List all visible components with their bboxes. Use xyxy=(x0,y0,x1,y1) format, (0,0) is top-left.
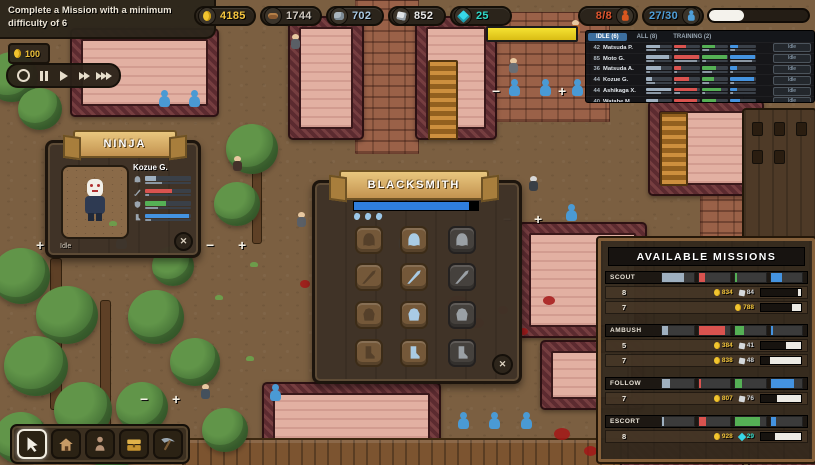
stat-speed xyxy=(730,99,756,103)
gold-value: 4185 xyxy=(220,10,246,22)
stat-attack xyxy=(674,99,700,103)
req-defense-bar xyxy=(734,416,767,427)
blood-splat xyxy=(554,428,570,440)
req-speed-bar xyxy=(770,416,803,427)
villager-character xyxy=(296,212,306,227)
req-defense-bar xyxy=(734,378,767,389)
assigned-worker-icon xyxy=(539,79,551,96)
stat-stealth xyxy=(646,88,672,95)
stat-speed xyxy=(730,77,756,84)
assigned-worker-icon xyxy=(520,412,532,429)
tab-training[interactable]: TRAINING (2) xyxy=(665,33,719,41)
window xyxy=(752,150,763,164)
tree xyxy=(202,408,248,452)
blacksmith-slot-tunic-leather[interactable] xyxy=(355,301,383,329)
roster-status-button[interactable]: Idle xyxy=(773,87,811,96)
stat-defense xyxy=(702,66,728,73)
silver-reward: 84 xyxy=(739,289,754,296)
req-stealth-bar xyxy=(661,325,694,336)
stat-defense xyxy=(702,88,728,95)
mission-section-name: SCOUT xyxy=(610,274,661,281)
sword-icon xyxy=(453,268,471,286)
blacksmith-slot-boots-locked xyxy=(448,339,476,367)
roster-level: 42 xyxy=(589,45,600,51)
house-icon xyxy=(57,435,75,453)
success-chance-bar xyxy=(760,432,802,441)
stat-attack xyxy=(674,77,700,84)
stat-defense xyxy=(702,55,728,62)
roster-level: 40 xyxy=(589,99,600,103)
roster-name: Watabe M. xyxy=(603,99,646,103)
silver-value: 852 xyxy=(414,10,433,22)
ninja-population: 8/8 xyxy=(578,6,638,26)
storage-tool-button[interactable] xyxy=(119,429,149,459)
blacksmith-slot-sword-leather[interactable] xyxy=(355,263,383,291)
pause-button[interactable] xyxy=(35,67,52,84)
mission-row[interactable]: 8 834 84 xyxy=(605,286,808,299)
stop-icon xyxy=(17,69,30,82)
quest-objective: Complete a Mission with a minimum diffic… xyxy=(0,0,216,39)
hood-icon xyxy=(133,175,142,184)
grass-tuft xyxy=(215,295,223,300)
ninja-name: Kozue G. xyxy=(133,163,191,172)
blood-splat xyxy=(300,280,310,288)
gem-icon xyxy=(738,432,746,440)
mission-section-escort: ESCORT xyxy=(605,415,808,428)
close-icon[interactable]: ✕ xyxy=(492,354,513,375)
villager-character xyxy=(290,34,300,49)
house-courtyard xyxy=(299,27,353,129)
sword-icon xyxy=(405,268,423,286)
req-speed-bar xyxy=(770,272,803,283)
gold-reward: 384 xyxy=(714,342,733,349)
stone-resource: 702 xyxy=(326,6,384,26)
remove-worker-button[interactable]: − xyxy=(140,392,148,406)
mission-section-scout: SCOUT xyxy=(605,271,808,284)
stat-attack xyxy=(674,55,700,62)
coin-icon xyxy=(714,433,720,440)
roster-name: Moto G. xyxy=(603,56,646,62)
add-worker-button[interactable]: + xyxy=(558,84,566,98)
stone-icon xyxy=(330,7,348,25)
roster-status-button[interactable]: Idle xyxy=(773,65,811,74)
stat-attack xyxy=(674,88,700,95)
boot-icon xyxy=(453,344,471,362)
mission-difficulty: 7 xyxy=(622,356,626,365)
blood-splat xyxy=(543,296,555,305)
hood-icon xyxy=(453,231,471,249)
tree xyxy=(18,88,62,130)
shield-icon xyxy=(133,200,142,209)
fastest-forward-icon xyxy=(106,72,112,80)
success-chance-bar xyxy=(760,394,802,403)
wood-icon xyxy=(264,7,282,25)
build-toolbar xyxy=(10,424,190,464)
mission-row[interactable]: 8 928 29 xyxy=(605,430,808,443)
req-stealth-bar xyxy=(661,378,694,389)
roster-name: Matsuda P. xyxy=(603,45,646,51)
material-queue-icons xyxy=(354,213,382,220)
req-speed-bar xyxy=(770,325,803,336)
ninja-leg xyxy=(96,213,102,221)
grass-tuft xyxy=(109,221,117,226)
quest-text: Complete a Mission with a minimum diffic… xyxy=(8,5,172,29)
assigned-worker-icon xyxy=(158,90,170,107)
roster-row[interactable]: 36 Matsuda A. Idle xyxy=(586,64,814,75)
window xyxy=(774,150,785,164)
roster-row[interactable]: 85 Moto G. Idle xyxy=(586,53,814,64)
build-tool-button[interactable] xyxy=(51,429,81,459)
stat-defense xyxy=(702,77,728,84)
blacksmith-slot-sword-steel[interactable] xyxy=(400,263,428,291)
gem-value: 25 xyxy=(476,10,489,22)
stat-attack xyxy=(674,45,700,52)
ninja-roster-panel: IDLE (6) ALL (8) TRAINING (2) 42 Matsuda… xyxy=(585,30,815,103)
coin-icon xyxy=(735,304,741,311)
add-worker-button[interactable]: + xyxy=(172,392,180,406)
req-stealth-bar xyxy=(661,416,694,427)
mission-difficulty: 5 xyxy=(622,341,626,350)
blacksmith-slot-hood-locked xyxy=(448,226,476,254)
sword-icon xyxy=(360,268,378,286)
assigned-worker-icon xyxy=(488,412,500,429)
barracks-building xyxy=(742,108,815,240)
grass-tuft xyxy=(246,356,254,361)
roster-row[interactable]: 44 Kozue G. Idle xyxy=(586,74,814,85)
building-progress-bar xyxy=(486,26,578,42)
ninja-stats: Kozue G. xyxy=(133,163,191,225)
req-stealth-bar xyxy=(661,272,694,283)
assigned-worker-icon xyxy=(565,204,577,221)
stop-button[interactable] xyxy=(15,67,32,84)
assigned-worker-icon xyxy=(508,79,520,96)
person-icon xyxy=(91,435,109,453)
silver-icon xyxy=(738,395,745,402)
mission-section-name: FOLLOW xyxy=(610,380,661,387)
mine-tool-button[interactable] xyxy=(153,429,183,459)
tree xyxy=(214,182,260,226)
req-defense-bar xyxy=(734,325,767,336)
tunic-icon xyxy=(453,306,471,324)
wood-value: 1744 xyxy=(286,10,312,22)
pause-icon xyxy=(40,71,48,81)
window xyxy=(796,122,807,136)
silver-resource: 852 xyxy=(388,6,446,26)
stat-speed xyxy=(730,55,756,62)
roster-row[interactable]: 42 Matsuda P. Idle xyxy=(586,42,814,53)
stat-defense xyxy=(702,99,728,103)
ninja-portrait xyxy=(61,165,129,239)
wood-resource: 1744 xyxy=(260,6,322,26)
gold-reward: 838 xyxy=(714,357,733,364)
window xyxy=(752,122,763,136)
stat-stealth xyxy=(646,99,672,103)
mission-difficulty: 7 xyxy=(622,303,626,312)
roster-status-button[interactable]: Idle xyxy=(773,97,811,103)
ninja-panel-banner: NINJA xyxy=(73,130,177,158)
assigned-worker-icon xyxy=(188,90,200,107)
assign-ninja-button[interactable]: + xyxy=(238,238,246,252)
stat-speed xyxy=(730,66,756,73)
pickaxe-icon xyxy=(159,435,177,453)
fast-forward-icon xyxy=(84,72,90,80)
tree xyxy=(170,338,220,386)
roster-level: 36 xyxy=(589,66,600,72)
mission-section-name: AMBUSH xyxy=(610,327,661,334)
ninja-population-icon xyxy=(616,7,634,25)
stat-speed xyxy=(730,88,756,95)
ninja-tool-button[interactable] xyxy=(85,429,115,459)
blacksmith-slot-sword-locked xyxy=(448,263,476,291)
assigned-worker-icon xyxy=(269,384,281,401)
roster-name: Ashikaga X. xyxy=(603,88,646,94)
silver-reward: 48 xyxy=(739,357,754,364)
game-screen: − + − + + − + Complete a Mission with a … xyxy=(0,0,815,465)
blacksmith-slot-boots-leather[interactable] xyxy=(355,339,383,367)
gold-icon xyxy=(198,7,216,25)
silver-icon xyxy=(738,357,745,364)
missions-title: AVAILABLE MISSIONS xyxy=(608,247,805,266)
hood-icon xyxy=(360,231,378,249)
stat-defense xyxy=(133,200,191,209)
ninja-population-value: 8/8 xyxy=(596,10,612,22)
wooden-fence xyxy=(182,438,631,465)
req-attack-bar xyxy=(698,325,731,336)
blacksmith-character xyxy=(508,58,518,73)
roster-status-button[interactable]: Idle xyxy=(773,76,811,85)
silver-icon xyxy=(738,342,745,349)
mission-section-ambush: AMBUSH xyxy=(605,324,808,337)
tunic-icon xyxy=(405,306,423,324)
stat-stealth xyxy=(646,77,672,84)
req-speed-bar xyxy=(770,378,803,389)
available-missions-panel: AVAILABLE MISSIONS SCOUT 8 834 84 7 788 xyxy=(598,238,815,462)
roster-level: 85 xyxy=(589,56,600,62)
mission-row[interactable]: 7 788 xyxy=(605,301,808,314)
coin-icon xyxy=(714,342,720,349)
play-icon xyxy=(60,71,68,81)
grass-tuft xyxy=(250,262,258,267)
silver-icon xyxy=(738,289,745,296)
ninja-detail-panel: NINJA Kozue G. xyxy=(45,140,201,258)
select-tool-button[interactable] xyxy=(17,429,47,459)
stat-stealth xyxy=(646,45,672,52)
req-attack-bar xyxy=(698,416,731,427)
coin-icon xyxy=(714,289,720,296)
villager-population-icon xyxy=(682,7,700,25)
quest-reward-badge: 100 xyxy=(8,43,50,64)
boot-icon xyxy=(360,344,378,362)
success-chance-bar xyxy=(760,303,802,312)
success-chance-bar xyxy=(760,288,802,297)
req-defense-bar xyxy=(734,272,767,283)
req-attack-bar xyxy=(698,272,731,283)
coin-icon xyxy=(714,357,720,364)
blacksmith-slot-tunic-steel[interactable] xyxy=(400,301,428,329)
cursor-icon xyxy=(23,435,41,453)
blacksmith-slot-tunic-locked xyxy=(448,301,476,329)
stat-speed xyxy=(730,45,756,52)
unassign-ninja-button[interactable]: − xyxy=(206,238,214,252)
mission-row[interactable]: 7 838 48 xyxy=(605,354,808,367)
roster-level: 44 xyxy=(589,88,600,94)
gold-resource: 4185 xyxy=(194,6,256,26)
roster-status-button[interactable]: Idle xyxy=(773,54,811,63)
blacksmith-slot-boots-steel[interactable] xyxy=(400,339,428,367)
fastest-forward-button[interactable] xyxy=(95,67,112,84)
tree xyxy=(36,286,98,344)
villager-population: 27/30 xyxy=(642,6,704,26)
mission-difficulty: 8 xyxy=(622,288,626,297)
mission-row[interactable]: 7 807 76 xyxy=(605,392,808,405)
villager-population-value: 27/30 xyxy=(649,10,678,22)
gem-reward: 29 xyxy=(739,433,754,440)
coin-icon xyxy=(14,49,21,58)
blood-splat xyxy=(584,446,597,456)
stat-attack xyxy=(133,188,191,197)
gold-reward: 928 xyxy=(714,433,733,440)
silver-reward: 76 xyxy=(739,395,754,402)
stat-defense xyxy=(702,45,728,52)
window xyxy=(774,122,785,136)
ninja-mask-icon xyxy=(87,179,103,197)
stone-value: 702 xyxy=(352,10,371,22)
coin-icon xyxy=(714,395,720,402)
chest-icon xyxy=(125,435,143,453)
tab-all[interactable]: ALL (8) xyxy=(629,33,666,41)
add-worker-button[interactable]: + xyxy=(36,238,44,252)
blacksmith-banner: BLACKSMITH xyxy=(339,170,489,200)
training-ladder xyxy=(428,60,458,140)
crafting-progress-bar xyxy=(353,201,479,211)
success-chance-bar xyxy=(760,341,802,350)
gem-resource: 25 xyxy=(450,6,512,26)
stat-stealth xyxy=(646,55,672,62)
mission-difficulty: 7 xyxy=(622,394,626,403)
ninja-character xyxy=(528,176,538,191)
close-icon[interactable]: ✕ xyxy=(174,232,193,251)
villager-character xyxy=(232,156,242,171)
training-ladder xyxy=(660,112,688,186)
roster-row[interactable]: 44 Ashikaga X. Idle xyxy=(586,85,814,96)
req-attack-bar xyxy=(698,378,731,389)
sword-icon xyxy=(133,188,142,197)
fast-forward-button[interactable] xyxy=(75,67,92,84)
top-progress-bar xyxy=(707,8,810,23)
tab-idle[interactable]: IDLE (6) xyxy=(588,33,627,41)
mission-difficulty: 8 xyxy=(622,432,626,441)
assigned-worker-icon xyxy=(457,412,469,429)
boot-icon xyxy=(133,213,142,222)
quest-reward-value: 100 xyxy=(25,49,40,59)
mission-section-follow: FOLLOW xyxy=(605,377,808,390)
mission-row[interactable]: 5 384 41 xyxy=(605,339,808,352)
stat-attack xyxy=(674,66,700,73)
tree xyxy=(128,290,184,344)
roster-level: 44 xyxy=(589,77,600,83)
gold-reward: 807 xyxy=(714,395,733,402)
silver-reward: 41 xyxy=(739,342,754,349)
ninja-status-label: Idle xyxy=(60,243,71,250)
gem-icon xyxy=(454,7,472,25)
gold-reward: 788 xyxy=(735,304,754,311)
stat-stealth xyxy=(133,175,191,184)
tunic-icon xyxy=(360,306,378,324)
roster-row[interactable]: 40 Watabe M. Idle xyxy=(586,96,814,103)
roster-status-button[interactable]: Idle xyxy=(773,43,811,52)
roster-tabs: IDLE (6) ALL (8) TRAINING (2) xyxy=(586,31,814,42)
stat-speed xyxy=(133,213,191,222)
gold-reward: 834 xyxy=(714,289,733,296)
add-worker-button[interactable]: + xyxy=(534,212,542,226)
blacksmith-title: BLACKSMITH xyxy=(368,179,461,191)
tree xyxy=(4,336,68,396)
roster-name: Kozue G. xyxy=(603,77,646,83)
boot-icon xyxy=(405,344,423,362)
villager-character xyxy=(200,384,210,399)
ninja-panel-title: NINJA xyxy=(103,138,146,150)
game-speed-controls xyxy=(6,63,121,88)
success-chance-bar xyxy=(760,356,802,365)
assigned-worker-icon xyxy=(571,79,583,96)
blacksmith-panel: BLACKSMITH ✕ xyxy=(312,180,522,384)
mission-section-name: ESCORT xyxy=(610,418,661,425)
play-button[interactable] xyxy=(55,67,72,84)
ninja-leg xyxy=(88,213,94,221)
remove-worker-button[interactable]: − xyxy=(492,84,500,98)
ninja-body xyxy=(85,196,105,214)
roster-name: Matsuda A. xyxy=(603,66,646,72)
stat-stealth xyxy=(646,66,672,73)
silver-icon xyxy=(392,7,410,25)
blacksmith-slot-hood-steel[interactable] xyxy=(400,226,428,254)
blacksmith-slot-hood-leather[interactable] xyxy=(355,226,383,254)
hood-icon xyxy=(405,231,423,249)
